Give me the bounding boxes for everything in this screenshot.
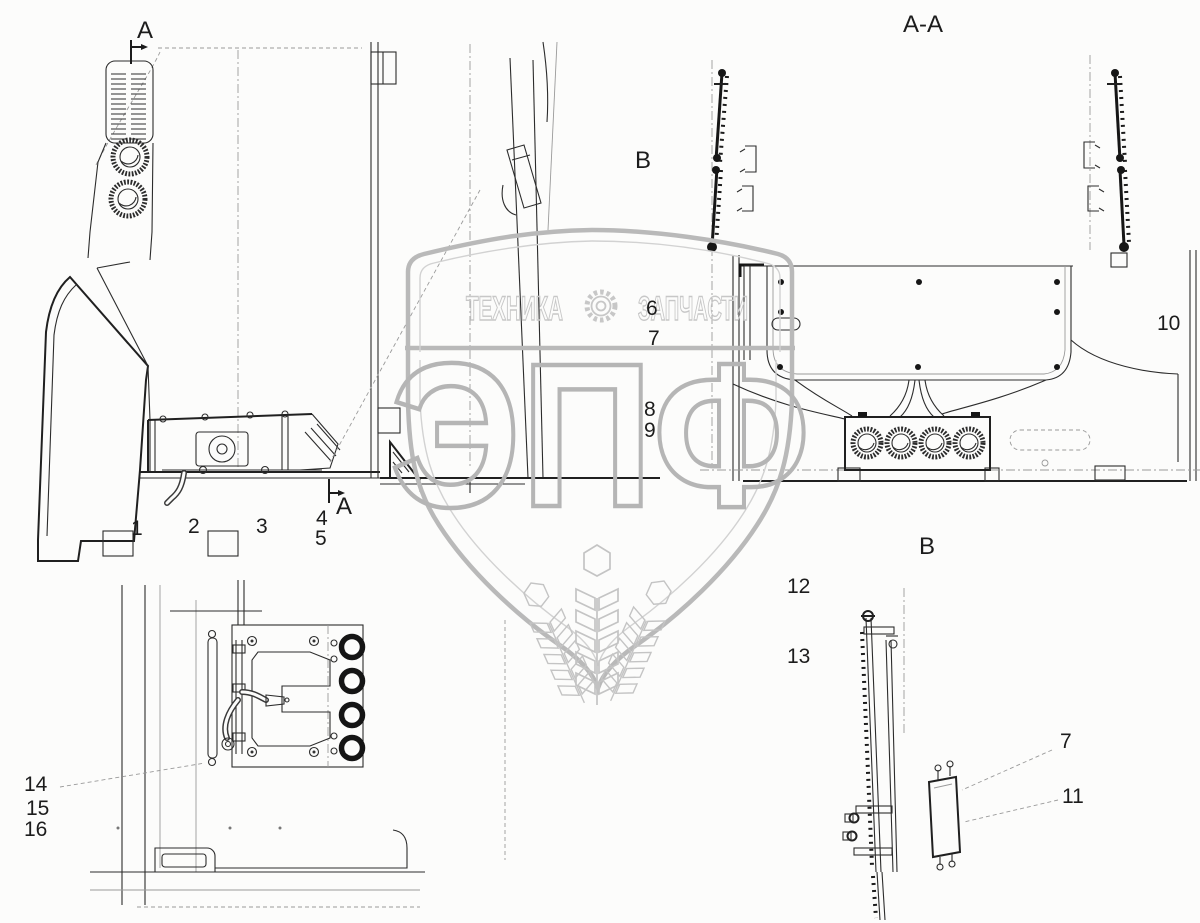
callout-12: 12: [787, 576, 810, 597]
vent-column: [342, 637, 363, 759]
callout-8: 8: [644, 399, 656, 420]
view-vent-panel-detail: [60, 580, 505, 907]
callout-13: 13: [787, 646, 810, 667]
edge-strip: [208, 638, 217, 758]
blower-motor: [209, 436, 235, 462]
leader-7: [962, 750, 1052, 790]
gear-icon: [587, 292, 615, 320]
callout-4: 4: [316, 508, 328, 529]
view-b-title-label: B: [919, 535, 935, 559]
hinge-strip-left: [707, 69, 728, 252]
hinge-strip-right: [1107, 69, 1129, 252]
watermark-monogram: ЭПФ: [390, 321, 810, 550]
leader-11: [964, 800, 1058, 822]
leader-14: [60, 763, 205, 787]
section-cut-label-top: A: [137, 19, 153, 43]
callout-7: 7: [648, 328, 660, 349]
wheat-ear-icon: [515, 545, 679, 710]
clamp-bracket: [929, 761, 960, 870]
callout-3: 3: [256, 516, 268, 537]
bracket-left-1: [740, 146, 756, 172]
section-view-label-aa: A-A: [903, 13, 943, 37]
callout-10: 10: [1157, 313, 1180, 334]
callout-9: 9: [644, 420, 656, 441]
callout-6: 6: [646, 298, 658, 319]
callout-14: 14: [24, 774, 47, 795]
callout-16: 16: [24, 819, 47, 840]
heater-unit: [148, 411, 340, 472]
callout-1: 1: [131, 518, 143, 539]
callout-11: 11: [1062, 786, 1084, 807]
callout-15: 15: [26, 798, 49, 819]
bracket-right-1: [1084, 142, 1100, 168]
view-b-strip: [843, 588, 1058, 920]
toothed-strip: [843, 611, 898, 920]
bracket-left-2: [737, 186, 753, 211]
round-vent-icon: [111, 140, 147, 216]
watermark-shield: ТЕХНИКА ЗАПЧАСТИ ЭПФ: [390, 230, 810, 710]
parts-diagram-page: ТЕХНИКА ЗАПЧАСТИ ЭПФ A A-A B A B 1 2 3 4…: [0, 0, 1200, 923]
diagram-canvas: ТЕХНИКА ЗАПЧАСТИ ЭПФ: [0, 0, 1200, 923]
section-cut-label-bottom: A: [336, 495, 352, 519]
callout-5: 5: [315, 528, 327, 549]
callout-2: 2: [188, 516, 200, 537]
roof-vent-grille: [106, 61, 153, 143]
view-b-marker-label: B: [635, 149, 651, 173]
vent-block: [845, 412, 990, 470]
callout-7b: 7: [1060, 731, 1072, 752]
